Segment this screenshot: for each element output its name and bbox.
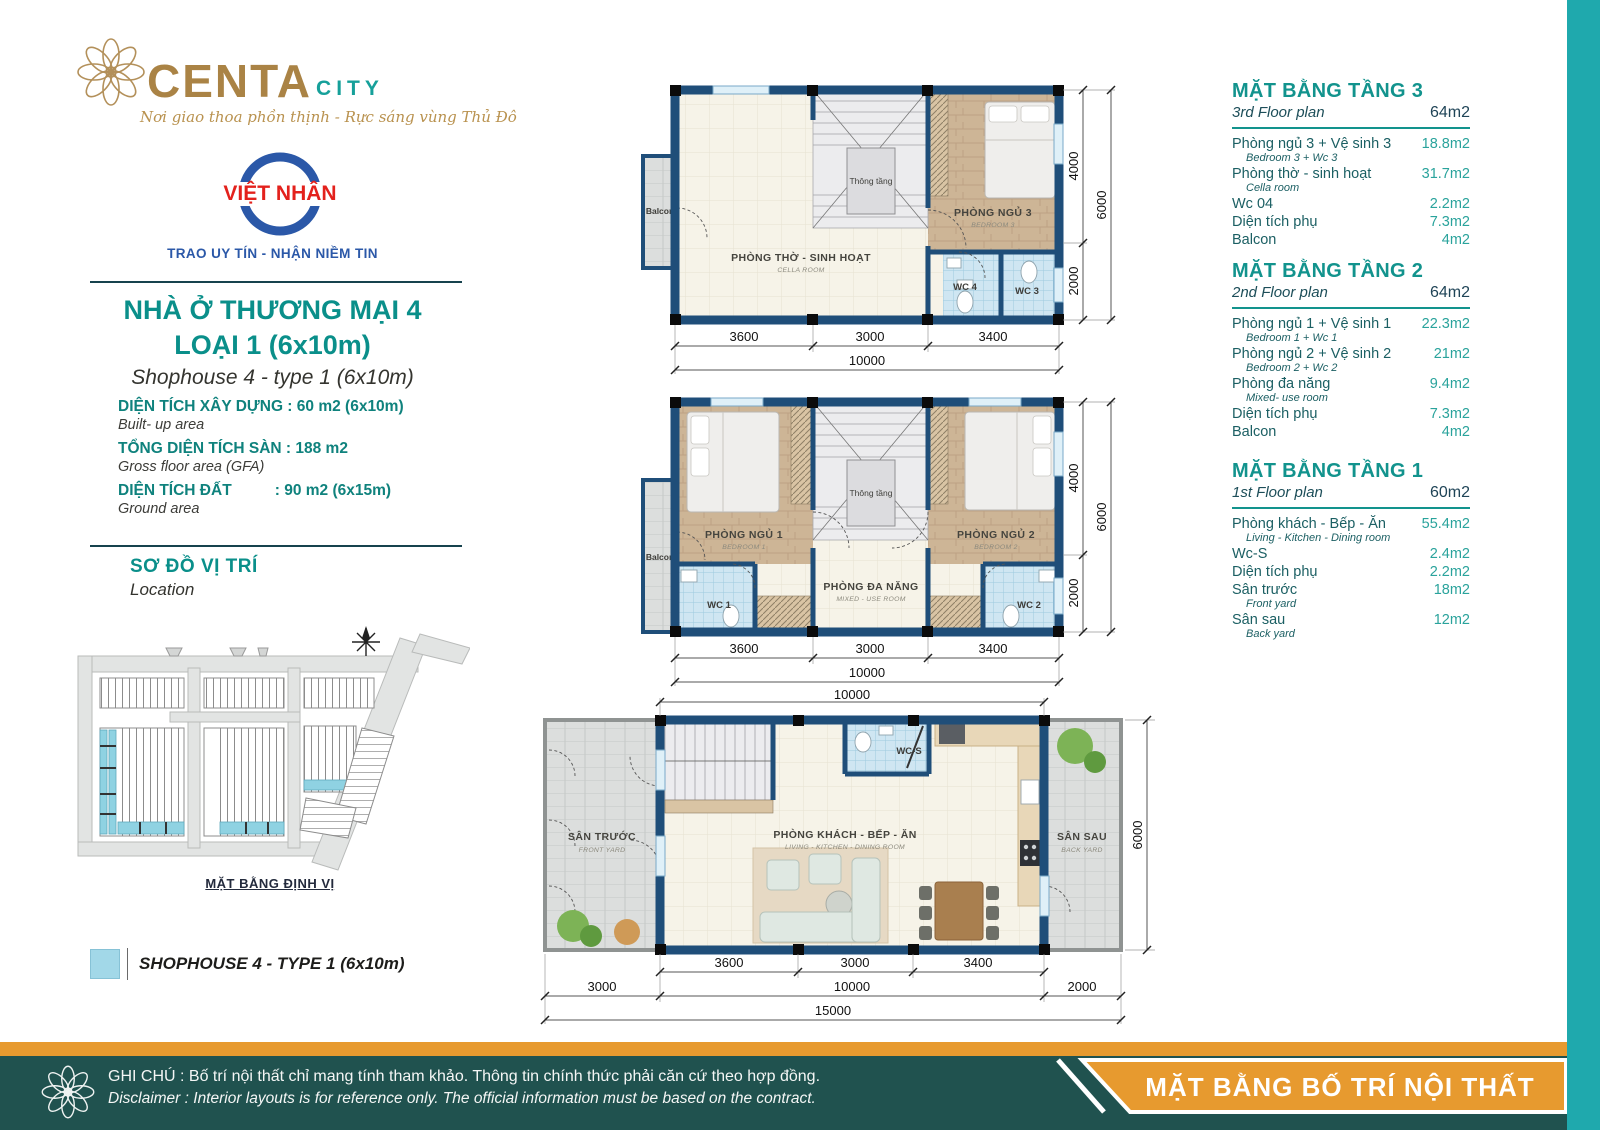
plan3-dim-2000: 2000 bbox=[1066, 267, 1081, 296]
brochure-page: CENTA CITY Nơi giao thoa phồn thịnh - Rự… bbox=[0, 0, 1600, 1130]
floor3-table-total: 64m2 bbox=[1430, 104, 1470, 122]
viet-nhan-ring-icon: VIỆT NHÂN bbox=[220, 146, 340, 242]
floor-plan-2: Balcon Thông tầng bbox=[613, 392, 1171, 706]
floor1-table-subtitle: 1st Floor plan bbox=[1232, 484, 1323, 501]
floor1-table-total: 60m2 bbox=[1430, 484, 1470, 502]
plan2-dim-4000: 4000 bbox=[1066, 464, 1081, 493]
floor-plan-3: Balcon Thông tầng bbox=[613, 80, 1171, 394]
footer-note-vi: GHI CHÚ : Bố trí nội thất chỉ mang tính … bbox=[108, 1068, 1108, 1086]
brand-name-accent: CITY bbox=[316, 77, 384, 101]
plan3-dim-3000: 3000 bbox=[856, 329, 885, 344]
plan1-back-sublabel: BACK YARD bbox=[1061, 847, 1102, 854]
legend: SHOPHOUSE 4 - TYPE 1 (6x10m) bbox=[90, 948, 404, 980]
spec-list: DIỆN TÍCH XÂY DỰNG : 60 m2 (6x10m) Built… bbox=[118, 398, 478, 524]
table-row: Diện tích phụ2.2m2 bbox=[1232, 564, 1470, 580]
plan3-dim-10000: 10000 bbox=[849, 353, 885, 368]
table-row: Wc-S2.4m2 bbox=[1232, 546, 1470, 562]
plan3-cella-sublabel: CELLA ROOM bbox=[777, 267, 824, 274]
spec-built-up-label: DIỆN TÍCH XÂY DỰNG : 60 m2 (6x10m) bbox=[118, 398, 478, 416]
plan1-dim-top-10000: 10000 bbox=[834, 690, 870, 702]
floor3-table-title: MẶT BẰNG TẦNG 3 bbox=[1232, 80, 1470, 103]
plan1-dim-6000: 6000 bbox=[1130, 821, 1145, 850]
footer-ribbon: MẶT BẰNG BỐ TRÍ NỘI THẤT bbox=[1048, 1056, 1568, 1116]
table-rule bbox=[1232, 127, 1470, 129]
spec-ground-sub: Ground area bbox=[118, 501, 478, 517]
legend-label: SHOPHOUSE 4 - TYPE 1 (6x10m) bbox=[139, 954, 404, 974]
floor2-table-title: MẶT BẰNG TẦNG 2 bbox=[1232, 260, 1470, 283]
plan1-living-label: PHÒNG KHÁCH - BẾP - ĂN bbox=[773, 828, 916, 841]
floor2-table: MẶT BẰNG TẦNG 2 2nd Floor plan 64m2 Phòn… bbox=[1232, 260, 1470, 440]
compass-icon bbox=[352, 626, 380, 656]
plan3-void-label: Thông tầng bbox=[849, 176, 892, 186]
plan2-dim-3000: 3000 bbox=[856, 641, 885, 656]
plan2-bed2-sublabel: BEDROOM 2 bbox=[974, 544, 1018, 551]
plan1-dim-3400: 3400 bbox=[964, 955, 993, 970]
spec-gfa-label: TỔNG DIỆN TÍCH SÀN : 188 m2 bbox=[118, 440, 478, 458]
plan2-balcony-label: Balcon bbox=[646, 552, 674, 562]
floor3-table: MẶT BẰNG TẦNG 3 3rd Floor plan 64m2 Phòn… bbox=[1232, 80, 1470, 248]
plan1-dim-right-2000: 2000 bbox=[1068, 979, 1097, 994]
plan2-wc1-label: WC 1 bbox=[707, 600, 731, 611]
plan2-dim-3400: 3400 bbox=[979, 641, 1008, 656]
table-row: Phòng đa năng9.4m2 bbox=[1232, 376, 1470, 392]
table-row: Balcon4m2 bbox=[1232, 424, 1470, 440]
floor2-table-total: 64m2 bbox=[1430, 284, 1470, 302]
centa-rosette-icon bbox=[75, 36, 147, 108]
site-map-caption: MẶT BẰNG ĐỊNH VỊ bbox=[70, 876, 470, 891]
floor1-table: MẶT BẰNG TẦNG 1 1st Floor plan 60m2 Phòn… bbox=[1232, 460, 1470, 642]
table-row: Wc 042.2m2 bbox=[1232, 196, 1470, 212]
plan3-bed3-sublabel: BEDROOM 3 bbox=[971, 222, 1015, 229]
plan2-dim-10000: 10000 bbox=[849, 665, 885, 680]
plan2-dim-3600: 3600 bbox=[730, 641, 759, 656]
table-row-sub: Bedroom 3 + Wc 3 bbox=[1246, 152, 1470, 164]
plan3-dim-4000: 4000 bbox=[1066, 152, 1081, 181]
footer-rosette-icon bbox=[40, 1064, 96, 1120]
plan3-cella-label: PHÒNG THỜ - SINH HOẠT bbox=[731, 251, 871, 264]
table-row: Sân trước18m2 bbox=[1232, 582, 1470, 598]
floor1-table-title: MẶT BẰNG TẦNG 1 bbox=[1232, 460, 1470, 483]
plan2-bed1-label: PHÒNG NGỦ 1 bbox=[705, 528, 783, 541]
legend-swatch bbox=[90, 949, 120, 979]
plan1-dim-left-3000: 3000 bbox=[588, 979, 617, 994]
table-row: Phòng khách - Bếp - Ăn55.4m2 bbox=[1232, 516, 1470, 532]
brand-name: CENTA bbox=[147, 54, 312, 108]
product-title-line2: LOẠI 1 (6x10m) bbox=[75, 328, 470, 363]
legend-divider bbox=[127, 948, 128, 980]
footer-accent-stripe bbox=[0, 1042, 1600, 1056]
plan1-dim-3000: 3000 bbox=[841, 955, 870, 970]
site-map bbox=[70, 608, 470, 872]
footer-note-en: Disclaimer : Interior layouts is for ref… bbox=[108, 1090, 1108, 1108]
product-subtitle: Shophouse 4 - type 1 (6x10m) bbox=[75, 366, 470, 390]
plan1-living-sublabel: LIVING - KITCHEN - DINING ROOM bbox=[785, 844, 905, 851]
footer-ribbon-label: MẶT BẰNG BỐ TRÍ NỘI THẤT bbox=[1145, 1072, 1534, 1102]
plan3-dim-3600: 3600 bbox=[730, 329, 759, 344]
location-subtitle: Location bbox=[130, 580, 194, 600]
spec-gfa-sub: Gross floor area (GFA) bbox=[118, 459, 478, 475]
plan1-dim-3600: 3600 bbox=[715, 955, 744, 970]
plan1-front-label: SÂN TRƯỚC bbox=[568, 830, 636, 843]
plan3-wc3-label: WC 3 bbox=[1015, 286, 1039, 297]
page-edge-strip bbox=[1567, 0, 1600, 1130]
floor3-table-subtitle: 3rd Floor plan bbox=[1232, 104, 1325, 121]
partner-name: VIỆT NHÂN bbox=[223, 181, 336, 205]
table-row-sub: Bedroom 2 + Wc 2 bbox=[1246, 362, 1470, 374]
table-row: Diện tích phụ7.3m2 bbox=[1232, 214, 1470, 230]
product-title-block: NHÀ Ở THƯƠNG MẠI 4 LOẠI 1 (6x10m) Shopho… bbox=[75, 293, 470, 390]
spec-built-up-sub: Built- up area bbox=[118, 417, 478, 433]
table-row: Phòng ngủ 3 + Vệ sinh 318.8m2 bbox=[1232, 136, 1470, 152]
partner-slogan: TRAO UY TÍN - NHẬN NIỀM TIN bbox=[75, 246, 470, 261]
divider-location bbox=[90, 545, 462, 547]
plan3-dim-3400: 3400 bbox=[979, 329, 1008, 344]
plan2-bed1-sublabel: BEDROOM 1 bbox=[722, 544, 766, 551]
plan2-dim-6000: 6000 bbox=[1094, 503, 1109, 532]
table-row-sub: Bedroom 1 + Wc 1 bbox=[1246, 332, 1470, 344]
floor-plan-1: SÂN TRƯỚC FRONT YARD PHÒNG KHÁCH - BẾP -… bbox=[515, 690, 1195, 1038]
plan1-wcs-label: WC-S bbox=[896, 746, 921, 757]
plan3-wc4-label: WC 4 bbox=[953, 282, 977, 293]
plan3-bed3-label: PHÒNG NGỦ 3 bbox=[954, 206, 1032, 219]
table-row-sub: Front yard bbox=[1246, 598, 1470, 610]
table-rule bbox=[1232, 507, 1470, 509]
plan3-dim-6000: 6000 bbox=[1094, 191, 1109, 220]
plan1-back-label: SÂN SAU bbox=[1057, 830, 1107, 843]
plan1-dim-15000: 15000 bbox=[815, 1003, 851, 1018]
plan1-dim-mid-10000: 10000 bbox=[834, 979, 870, 994]
plan2-dim-2000: 2000 bbox=[1066, 579, 1081, 608]
plan2-bed2-label: PHÒNG NGỦ 2 bbox=[957, 528, 1035, 541]
location-title: SƠ ĐỒ VỊ TRÍ bbox=[130, 556, 258, 578]
plan1-front-sublabel: FRONT YARD bbox=[579, 847, 626, 854]
partner-logo: VIỆT NHÂN bbox=[170, 146, 390, 247]
spec-ground-label: DIỆN TÍCH ĐẤT : 90 m2 (6x15m) bbox=[118, 482, 478, 500]
table-row: Phòng ngủ 2 + Vệ sinh 221m2 bbox=[1232, 346, 1470, 362]
table-row: Phòng ngủ 1 + Vệ sinh 122.3m2 bbox=[1232, 316, 1470, 332]
brand-logo: CENTA CITY bbox=[75, 36, 384, 108]
plan2-wc2-label: WC 2 bbox=[1017, 600, 1041, 611]
table-row: Diện tích phụ7.3m2 bbox=[1232, 406, 1470, 422]
brand-tagline: Nơi giao thoa phồn thịnh - Rực sáng vùng… bbox=[140, 108, 520, 126]
product-title-line1: NHÀ Ở THƯƠNG MẠI 4 bbox=[75, 293, 470, 328]
table-row-sub: Cella room bbox=[1246, 182, 1470, 194]
table-row-sub: Back yard bbox=[1246, 628, 1470, 640]
plan2-multi-label: PHÒNG ĐA NĂNG bbox=[823, 580, 918, 593]
table-row: Phòng thờ - sinh hoạt31.7m2 bbox=[1232, 166, 1470, 182]
table-rule bbox=[1232, 307, 1470, 309]
plan2-multi-sublabel: MIXED - USE ROOM bbox=[836, 596, 905, 603]
floor2-table-subtitle: 2nd Floor plan bbox=[1232, 284, 1328, 301]
plan3-balcony-label: Balcon bbox=[646, 206, 674, 216]
divider-top bbox=[90, 281, 462, 283]
table-row: Sân sau12m2 bbox=[1232, 612, 1470, 628]
table-row-sub: Living - Kitchen - Dining room bbox=[1246, 532, 1470, 544]
table-row-sub: Mixed- use room bbox=[1246, 392, 1470, 404]
plan2-void-label: Thông tầng bbox=[849, 488, 892, 498]
table-row: Balcon4m2 bbox=[1232, 232, 1470, 248]
